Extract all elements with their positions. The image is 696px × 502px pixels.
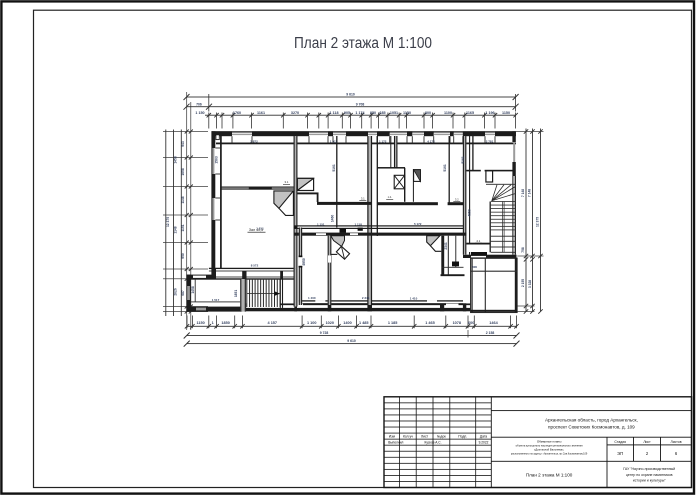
- svg-text:проспект Советских Космонавтов: проспект Советских Космонавтов, д. 109: [548, 425, 635, 430]
- svg-text:Изм: Изм: [389, 435, 396, 439]
- svg-text:истории и культуры": истории и культуры": [633, 479, 667, 483]
- svg-text:1503: 1503: [215, 156, 219, 164]
- svg-text:расположенного по адресу: г.Ар: расположенного по адресу: г.Архангельск,…: [511, 452, 588, 455]
- svg-text:1151: 1151: [181, 224, 185, 231]
- svg-text:1051: 1051: [390, 111, 398, 115]
- svg-text:Стадия: Стадия: [614, 440, 626, 444]
- svg-text:2: 2: [646, 451, 649, 456]
- svg-text:1 118: 1 118: [329, 111, 338, 115]
- svg-text:758: 758: [521, 247, 525, 253]
- svg-text:3.1: 3.1: [285, 180, 289, 184]
- svg-text:9 728: 9 728: [320, 331, 329, 335]
- svg-text:12 375: 12 375: [166, 217, 170, 227]
- svg-text:ЭП: ЭП: [617, 451, 623, 456]
- svg-text:1150: 1150: [502, 111, 510, 115]
- svg-text:1078: 1078: [453, 321, 461, 325]
- svg-text:706: 706: [196, 102, 202, 106]
- svg-text:п.1: п.1: [388, 195, 392, 199]
- svg-text:1020: 1020: [326, 321, 334, 325]
- svg-text:687: 687: [181, 290, 185, 296]
- svg-text:1 196: 1 196: [485, 111, 494, 115]
- svg-text:2026: 2026: [174, 288, 178, 296]
- svg-text:600: 600: [472, 265, 477, 269]
- svg-text:1460: 1460: [331, 215, 335, 223]
- svg-text:1 485: 1 485: [359, 321, 369, 325]
- svg-text:1 151: 1 151: [317, 222, 325, 226]
- svg-text:объекта культурного наследия р: объекта культурного наследия регионально…: [516, 444, 584, 448]
- svg-text:Кусков А.С.: Кусков А.С.: [425, 441, 442, 445]
- svg-text:3.1: 3.1: [361, 197, 365, 201]
- svg-text:950: 950: [181, 253, 185, 259]
- svg-text:ГАУ "Научно-производственный: ГАУ "Научно-производственный: [623, 467, 675, 471]
- svg-text:9.2022: 9.2022: [479, 441, 489, 445]
- svg-text:6: 6: [675, 451, 678, 456]
- svg-text:Обмерные планы: Обмерные планы: [537, 440, 562, 444]
- svg-text:Листов: Листов: [670, 440, 681, 444]
- svg-text:3 328: 3 328: [528, 280, 532, 288]
- svg-text:Лист: Лист: [421, 435, 429, 439]
- svg-text:12 375: 12 375: [536, 217, 540, 227]
- svg-text:1464: 1464: [489, 321, 498, 325]
- svg-text:1 100: 1 100: [307, 321, 317, 325]
- svg-text:685: 685: [379, 111, 385, 115]
- svg-text:9 708: 9 708: [356, 102, 365, 106]
- svg-text:2 158: 2 158: [486, 331, 495, 335]
- svg-text:1: 1: [212, 321, 214, 325]
- svg-text:1458: 1458: [191, 286, 195, 294]
- svg-text:«Дом жилой Вальнева»,: «Дом жилой Вальнева»,: [534, 447, 565, 451]
- svg-text:4950: 4950: [467, 209, 471, 217]
- svg-text:1 172: 1 172: [379, 140, 387, 144]
- svg-text:Архангельская область, город А: Архангельская область, город Архангельск…: [545, 418, 638, 423]
- svg-text:8 572: 8 572: [251, 264, 259, 268]
- svg-text:1658: 1658: [181, 168, 185, 176]
- svg-text:1100: 1100: [444, 111, 452, 115]
- svg-text:1 465: 1 465: [425, 321, 435, 325]
- svg-text:2341: 2341: [444, 242, 448, 250]
- svg-text:Кол.уч: Кол.уч: [403, 435, 413, 439]
- svg-text:4950: 4950: [302, 258, 306, 266]
- svg-text:1 911: 1 911: [330, 140, 338, 144]
- svg-text:9 610: 9 610: [347, 339, 356, 343]
- svg-text:1165: 1165: [466, 111, 474, 115]
- svg-text:905: 905: [344, 111, 350, 115]
- svg-text:Подп.: Подп.: [458, 435, 467, 439]
- svg-text:1 174: 1 174: [355, 111, 365, 115]
- svg-text:центр по охране памятников: центр по охране памятников: [626, 473, 673, 477]
- svg-text:2 155: 2 155: [521, 279, 525, 287]
- svg-text:№док: №док: [437, 435, 446, 439]
- svg-text:1 400: 1 400: [308, 296, 316, 300]
- svg-text:1 151: 1 151: [256, 226, 264, 230]
- svg-text:5161: 5161: [461, 156, 465, 164]
- svg-text:2 781: 2 781: [486, 140, 494, 144]
- svg-text:4 172: 4 172: [427, 140, 435, 144]
- svg-text:2.1: 2.1: [476, 239, 480, 243]
- svg-text:1760: 1760: [233, 111, 241, 115]
- svg-text:7 148: 7 148: [528, 189, 532, 197]
- svg-text:850: 850: [370, 111, 376, 115]
- svg-text:943: 943: [181, 141, 185, 147]
- svg-text:4 157: 4 157: [268, 321, 278, 325]
- svg-text:1150: 1150: [403, 111, 411, 115]
- svg-text:Лист: Лист: [643, 440, 651, 444]
- svg-text:2 345: 2 345: [362, 296, 370, 300]
- svg-text:5161: 5161: [443, 164, 447, 172]
- svg-text:Выполнил: Выполнил: [388, 441, 403, 445]
- svg-text:1148: 1148: [181, 196, 185, 203]
- svg-text:9 610: 9 610: [346, 92, 355, 96]
- svg-text:1458: 1458: [174, 156, 178, 164]
- svg-text:3 872: 3 872: [250, 140, 258, 144]
- svg-text:7 148: 7 148: [521, 189, 525, 197]
- svg-text:1 118: 1 118: [355, 222, 363, 226]
- svg-text:600: 600: [468, 321, 474, 325]
- svg-text:1161: 1161: [257, 111, 265, 115]
- svg-text:1851: 1851: [234, 290, 238, 298]
- svg-text:800: 800: [425, 111, 431, 115]
- svg-text:План 2 этажа М 1:100: План 2 этажа М 1:100: [294, 35, 432, 52]
- svg-text:3270: 3270: [291, 111, 299, 115]
- svg-text:1148: 1148: [174, 226, 178, 233]
- svg-text:1 185: 1 185: [388, 321, 398, 325]
- svg-text:5 172: 5 172: [414, 222, 422, 226]
- svg-text:5161: 5161: [332, 164, 336, 172]
- svg-text:1400: 1400: [343, 321, 351, 325]
- svg-text:1 410: 1 410: [410, 297, 418, 301]
- svg-text:Дата: Дата: [480, 435, 487, 439]
- svg-text:1 150: 1 150: [195, 111, 204, 115]
- svg-text:1850: 1850: [221, 321, 229, 325]
- svg-text:3.2: 3.2: [455, 198, 459, 202]
- svg-text:1150: 1150: [196, 321, 204, 325]
- svg-text:План 2 этажа М 1:100: План 2 этажа М 1:100: [526, 472, 573, 477]
- svg-text:1 517: 1 517: [212, 298, 220, 302]
